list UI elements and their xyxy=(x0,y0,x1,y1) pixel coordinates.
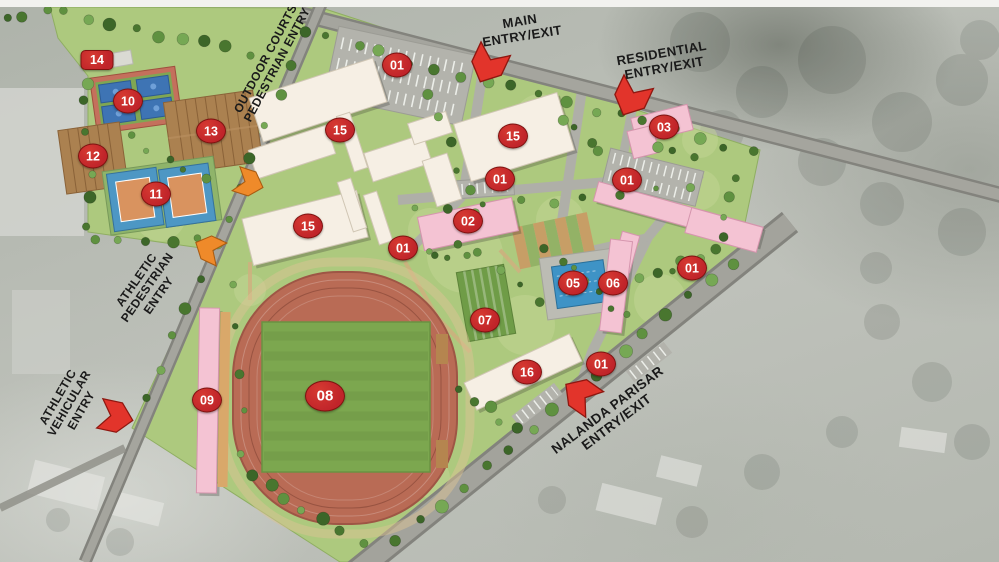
map-marker-11: 11 xyxy=(141,182,171,207)
label-outdoor-courts-pedestrian-entry: OUTDOOR COURTS PEDESTRIAN ENTRY xyxy=(230,0,313,125)
map-marker-05: 05 xyxy=(558,271,588,296)
top-white-strip xyxy=(0,0,999,7)
map-marker-06: 06 xyxy=(598,271,628,296)
map-marker-01: 01 xyxy=(612,168,642,193)
map-marker-13: 13 xyxy=(196,119,226,144)
map-marker-07: 07 xyxy=(470,308,500,333)
map-marker-10: 10 xyxy=(113,89,143,114)
map-marker-16: 16 xyxy=(512,360,542,385)
map-marker-14: 14 xyxy=(81,50,114,70)
map-marker-01: 01 xyxy=(586,352,616,377)
map-marker-15: 15 xyxy=(325,118,355,143)
map-marker-15: 15 xyxy=(293,214,323,239)
map-marker-03: 03 xyxy=(649,115,679,140)
labels-and-markers: MAIN ENTRY/EXITRESIDENTIAL ENTRY/EXITOUT… xyxy=(0,0,999,562)
map-marker-01: 01 xyxy=(382,53,412,78)
map-marker-02: 02 xyxy=(453,209,483,234)
label-nalanda-parisar-entry: NALANDA PARISAR ENTRY/EXIT xyxy=(549,363,676,469)
map-marker-01: 01 xyxy=(485,167,515,192)
label-athletic-pedestrian-entry: ATHLETIC PEDESTRIAN ENTRY xyxy=(108,243,188,333)
map-marker-01: 01 xyxy=(388,236,418,261)
map-marker-09: 09 xyxy=(192,388,222,413)
label-athletic-vehicular-entry: ATHLETIC VEHICULAR ENTRY xyxy=(34,362,106,446)
map-marker-08: 08 xyxy=(305,381,345,412)
map-marker-12: 12 xyxy=(78,144,108,169)
label-main-entry: MAIN ENTRY/EXIT xyxy=(479,8,563,49)
map-marker-15: 15 xyxy=(498,124,528,149)
map-marker-01: 01 xyxy=(677,256,707,281)
label-residential-entry: RESIDENTIAL ENTRY/EXIT xyxy=(616,39,711,83)
site-plan-map: MAIN ENTRY/EXITRESIDENTIAL ENTRY/EXITOUT… xyxy=(0,0,999,562)
